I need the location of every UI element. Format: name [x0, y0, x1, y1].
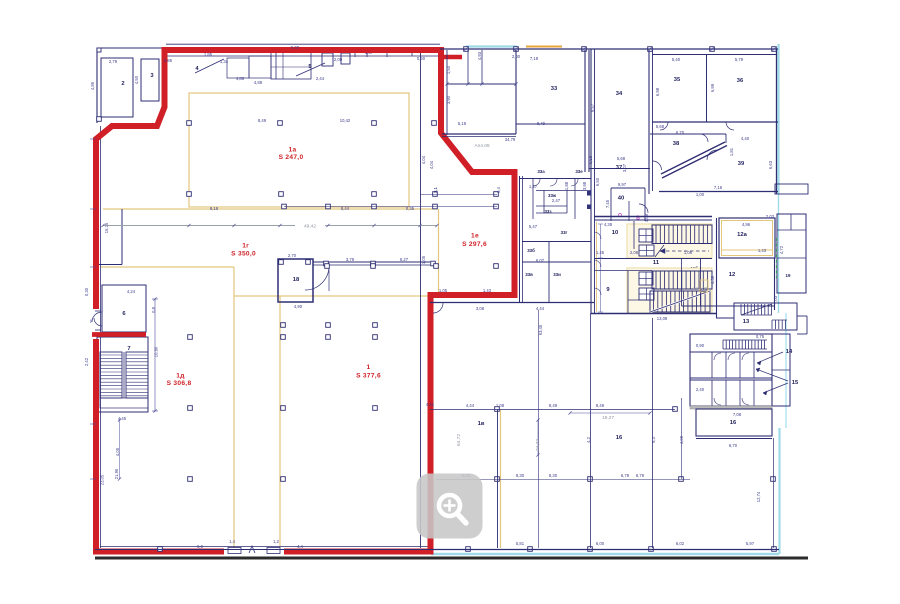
svg-text:6,70: 6,70: [729, 443, 738, 448]
svg-text:10: 10: [612, 230, 618, 236]
svg-text:33з: 33з: [544, 209, 552, 214]
svg-text:1,06: 1,06: [684, 250, 693, 255]
svg-text:4,2: 4,2: [586, 436, 591, 442]
svg-text:24,72: 24,72: [535, 439, 541, 451]
svg-text:4,44: 4,44: [536, 306, 545, 311]
svg-text:6,99: 6,99: [710, 83, 715, 92]
svg-text:1,43: 1,43: [483, 288, 492, 293]
svg-text:8,18: 8,18: [210, 206, 219, 211]
svg-text:2,70: 2,70: [288, 253, 297, 258]
svg-text:6,79: 6,79: [621, 473, 630, 478]
svg-text:23,05: 23,05: [100, 474, 105, 485]
svg-text:15,25: 15,25: [104, 222, 109, 233]
svg-text:1,34: 1,34: [220, 59, 229, 64]
svg-text:5,79: 5,79: [735, 57, 744, 62]
svg-text:S 377,6: S 377,6: [356, 373, 381, 380]
svg-text:35: 35: [674, 77, 681, 83]
svg-text:13: 13: [743, 319, 750, 325]
svg-text:5,81: 5,81: [516, 541, 525, 546]
svg-text:S 297,6: S 297,6: [462, 241, 487, 248]
svg-text:5,97: 5,97: [746, 541, 755, 546]
svg-text:33б: 33б: [527, 248, 535, 253]
svg-text:3,07: 3,07: [622, 163, 627, 172]
svg-text:21,95: 21,95: [114, 468, 119, 479]
svg-text:5,40: 5,40: [672, 57, 681, 62]
svg-text:1,4: 1,4: [229, 539, 235, 544]
svg-text:6,70: 6,70: [676, 130, 685, 135]
svg-text:9,97: 9,97: [618, 182, 627, 187]
svg-text:8,30: 8,30: [516, 473, 525, 478]
svg-text:1,45: 1,45: [596, 250, 605, 255]
svg-text:8,49: 8,49: [258, 118, 267, 123]
svg-text:12а: 12а: [737, 232, 747, 238]
svg-text:4,96: 4,96: [742, 222, 751, 227]
svg-text:16: 16: [730, 420, 737, 426]
svg-text:64,72: 64,72: [456, 434, 462, 446]
svg-text:1а: 1а: [289, 147, 297, 154]
svg-text:0,75: 0,75: [756, 334, 765, 339]
svg-text:33в: 33в: [525, 272, 533, 277]
svg-text:3,90: 3,90: [446, 95, 451, 104]
svg-text:0,35: 0,35: [406, 206, 415, 211]
svg-text:4,88: 4,88: [254, 80, 263, 85]
svg-text:4,85: 4,85: [164, 58, 173, 63]
svg-text:1,05: 1,05: [421, 255, 426, 264]
svg-text:10,90: 10,90: [154, 346, 159, 357]
svg-text:4,90: 4,90: [294, 304, 303, 309]
svg-text:6,63: 6,63: [768, 160, 773, 169]
svg-text:33г: 33г: [561, 230, 568, 235]
svg-text:S 350,0: S 350,0: [231, 250, 256, 257]
svg-text:9: 9: [606, 287, 610, 293]
svg-text:4,04: 4,04: [421, 155, 426, 164]
svg-text:0,90: 0,90: [696, 343, 705, 348]
svg-text:0,30: 0,30: [84, 287, 89, 296]
svg-text:6,3: 6,3: [651, 436, 656, 442]
svg-text:5,68: 5,68: [656, 124, 665, 129]
svg-text:4,09: 4,09: [679, 435, 684, 444]
svg-text:3: 3: [150, 73, 154, 79]
svg-text:12,74: 12,74: [756, 491, 761, 502]
svg-text:12: 12: [729, 272, 735, 278]
svg-text:19: 19: [786, 273, 791, 278]
svg-text:36: 36: [737, 78, 744, 84]
svg-text:4,93: 4,93: [477, 51, 482, 60]
svg-text:2: 2: [121, 81, 124, 87]
svg-text:1,47: 1,47: [529, 184, 538, 189]
svg-text:Ап4.08: Ап4.08: [474, 143, 489, 149]
svg-text:33: 33: [551, 86, 558, 92]
svg-text:5,00: 5,00: [291, 45, 300, 50]
svg-text:33а: 33а: [537, 169, 545, 174]
svg-text:8,30: 8,30: [549, 473, 558, 478]
svg-text:5,19: 5,19: [458, 121, 467, 126]
svg-text:34: 34: [616, 91, 623, 97]
svg-text:6,02: 6,02: [676, 541, 685, 546]
svg-text:1,50: 1,50: [446, 65, 451, 74]
svg-text:1,85: 1,85: [204, 52, 213, 57]
svg-text:1д: 1д: [176, 373, 185, 380]
svg-text:34,79: 34,79: [505, 137, 516, 142]
svg-text:63,45: 63,45: [538, 324, 543, 335]
svg-text:39: 39: [738, 161, 745, 167]
svg-text:4,44: 4,44: [466, 403, 475, 408]
svg-text:8,49: 8,49: [596, 403, 605, 408]
svg-text:19,27: 19,27: [602, 415, 614, 421]
svg-text:2,03: 2,03: [766, 214, 775, 219]
svg-text:10,42: 10,42: [340, 118, 351, 123]
svg-text:4,38: 4,38: [710, 275, 715, 284]
svg-text:0,60: 0,60: [417, 56, 426, 61]
svg-text:4,72: 4,72: [779, 245, 784, 254]
svg-text:11: 11: [653, 260, 660, 266]
svg-text:3,98: 3,98: [582, 181, 587, 190]
svg-text:6,79: 6,79: [636, 473, 645, 478]
svg-text:5,47: 5,47: [529, 224, 538, 229]
svg-text:1,81: 1,81: [729, 147, 734, 156]
svg-text:3,1: 3,1: [433, 186, 438, 192]
svg-text:4,88: 4,88: [236, 76, 245, 81]
svg-text:49,42: 49,42: [304, 224, 316, 230]
svg-text:7,16: 7,16: [714, 185, 723, 190]
svg-text:7: 7: [127, 346, 130, 352]
svg-text:S 247,0: S 247,0: [279, 154, 304, 161]
svg-text:5,0: 5,0: [197, 544, 203, 549]
svg-text:0,4: 0,4: [496, 186, 501, 192]
svg-text:7,18: 7,18: [530, 56, 539, 61]
svg-text:7,45: 7,45: [605, 199, 610, 208]
svg-text:18: 18: [293, 277, 300, 283]
svg-text:1,43: 1,43: [758, 248, 767, 253]
svg-text:13,09: 13,09: [657, 316, 668, 321]
svg-text:1е: 1е: [471, 233, 479, 240]
svg-text:16: 16: [616, 435, 623, 441]
svg-text:1,2: 1,2: [273, 539, 279, 544]
svg-text:7,08: 7,08: [733, 412, 742, 417]
svg-text:4,05: 4,05: [115, 447, 120, 456]
svg-text:3,08: 3,08: [476, 306, 485, 311]
svg-text:1в: 1в: [478, 421, 485, 427]
svg-text:S 306,8: S 306,8: [167, 380, 192, 387]
svg-text:6,07: 6,07: [536, 258, 545, 263]
svg-text:1,88: 1,88: [564, 181, 569, 190]
svg-text:33и: 33и: [553, 272, 561, 277]
svg-text:4,24: 4,24: [127, 289, 136, 294]
svg-text:2,08: 2,08: [630, 250, 639, 255]
svg-text:4,50: 4,50: [134, 75, 139, 84]
svg-text:33е: 33е: [575, 169, 583, 174]
svg-text:6: 6: [122, 311, 126, 317]
svg-text:14: 14: [786, 349, 793, 355]
svg-text:6,27: 6,27: [400, 257, 409, 262]
svg-text:2,40: 2,40: [696, 387, 705, 392]
svg-text:6,98: 6,98: [655, 87, 660, 96]
svg-text:1,08: 1,08: [496, 403, 505, 408]
svg-text:40: 40: [618, 196, 624, 202]
svg-text:2,47: 2,47: [552, 198, 561, 203]
svg-text:4,38: 4,38: [604, 222, 613, 227]
svg-text:4,04: 4,04: [429, 160, 434, 169]
svg-text:1,00: 1,00: [696, 192, 705, 197]
svg-text:1: 1: [367, 364, 371, 371]
svg-text:15: 15: [792, 380, 799, 386]
svg-text:8,49: 8,49: [537, 121, 546, 126]
svg-text:6,58: 6,58: [588, 155, 593, 164]
svg-text:5,68: 5,68: [617, 156, 626, 161]
svg-text:8,44: 8,44: [341, 206, 350, 211]
svg-text:8,49: 8,49: [549, 403, 558, 408]
svg-text:6,50: 6,50: [595, 177, 600, 186]
svg-text:0,8: 0,8: [151, 306, 156, 312]
svg-text:6,00: 6,00: [596, 541, 605, 546]
svg-text:1г: 1г: [242, 243, 249, 250]
svg-text:38: 38: [673, 141, 680, 147]
svg-text:2,44: 2,44: [316, 76, 325, 81]
svg-text:1,08: 1,08: [644, 213, 649, 222]
svg-text:7,03: 7,03: [773, 295, 778, 304]
svg-text:2,00: 2,00: [334, 57, 343, 62]
svg-text:4,44: 4,44: [426, 402, 435, 407]
svg-text:3,79: 3,79: [346, 257, 355, 262]
svg-text:2,00: 2,00: [512, 54, 521, 59]
svg-text:2,79: 2,79: [109, 59, 118, 64]
svg-text:1,05: 1,05: [439, 288, 448, 293]
svg-text:2,42: 2,42: [84, 357, 89, 366]
svg-text:4,4: 4,4: [297, 544, 303, 549]
svg-text:4,85: 4,85: [90, 81, 95, 90]
svg-text:4,40: 4,40: [741, 136, 750, 141]
